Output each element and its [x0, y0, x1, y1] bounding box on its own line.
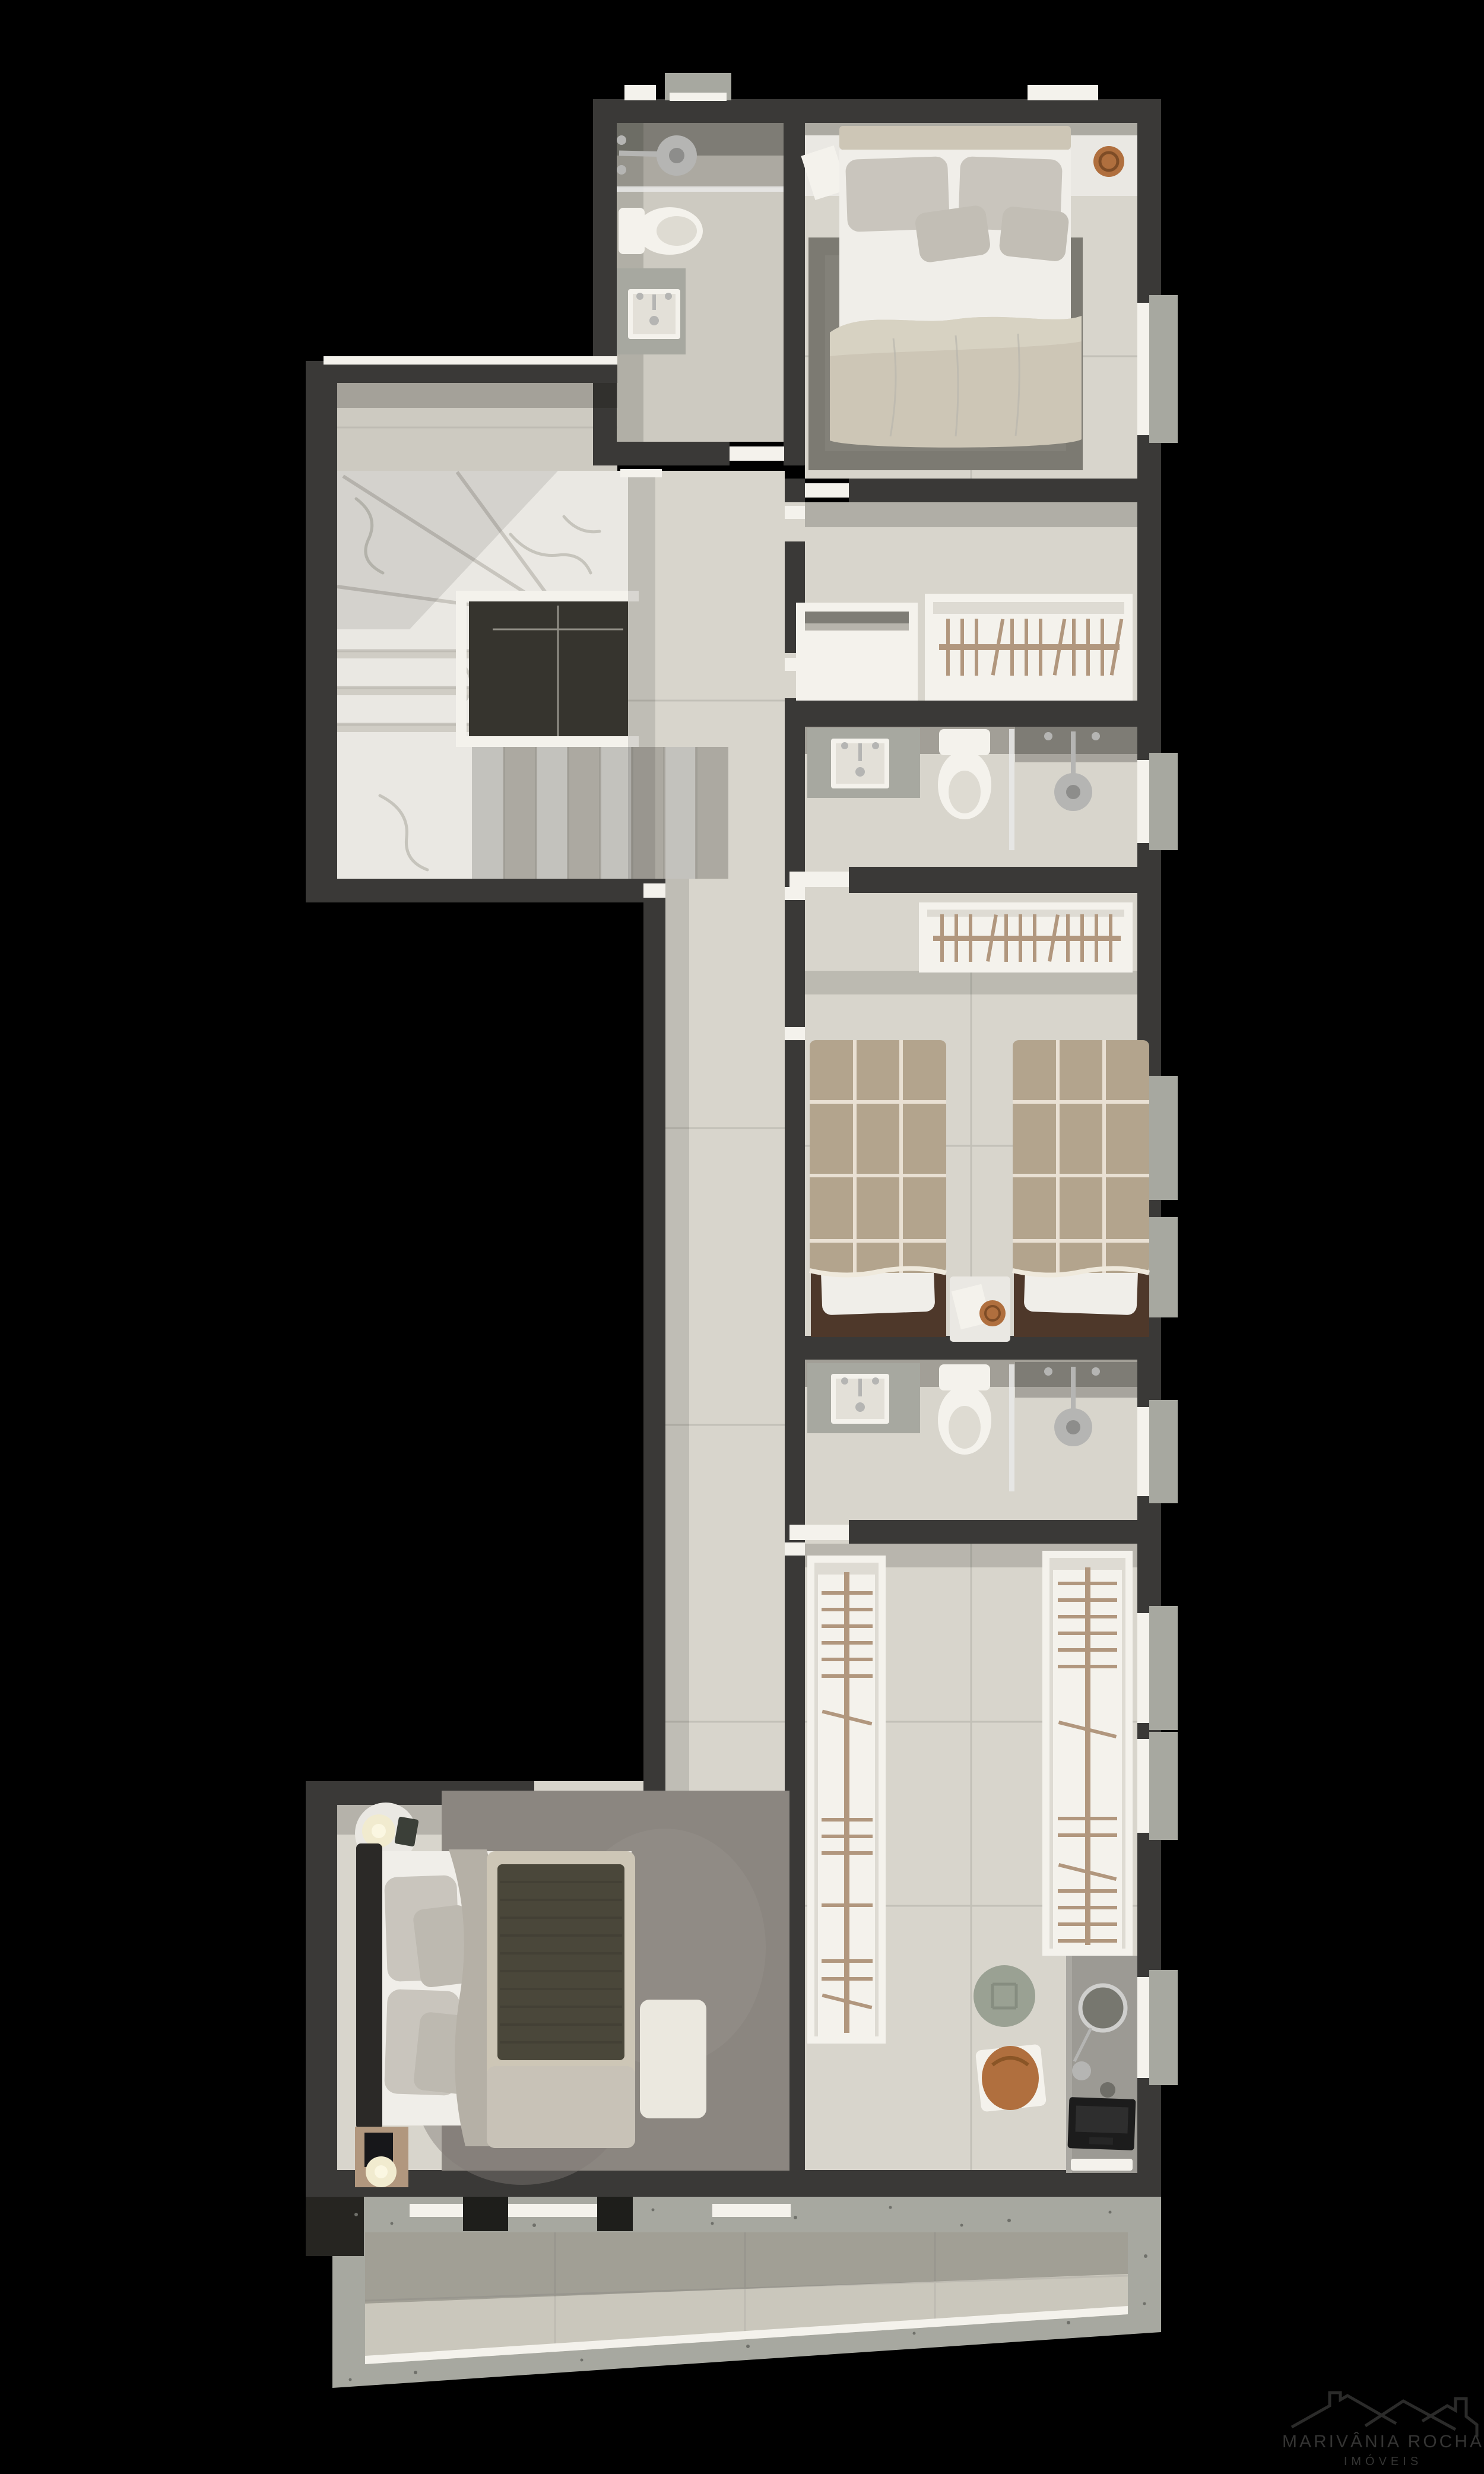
plaid-duvet — [810, 1040, 946, 1273]
sink-counter — [617, 268, 686, 354]
toilet — [938, 729, 991, 819]
round-mirror — [1080, 1985, 1125, 2030]
shower — [617, 123, 784, 192]
agency-tagline: IMÓVEIS — [1344, 2454, 1422, 2468]
lower-flight-steps — [472, 747, 728, 879]
small-dish — [1100, 2082, 1115, 2098]
toilet — [619, 207, 703, 255]
copper-decor — [979, 1300, 1006, 1326]
copper-decor — [1093, 146, 1124, 177]
clothes-rail-unit-2 — [919, 902, 1133, 973]
plaid-duvet — [1013, 1040, 1149, 1273]
sink-counter — [807, 728, 920, 798]
single-bed-left — [810, 1040, 946, 1337]
knit-throw — [497, 1864, 624, 2060]
king-bed — [356, 1843, 635, 2148]
toilet — [938, 1364, 991, 1455]
wardrobe-island-left — [807, 1556, 886, 2044]
notebook — [1071, 2159, 1133, 2171]
agency-name: MARIVÂNIA ROCHA — [1282, 2432, 1484, 2451]
foot-bench — [640, 2000, 706, 2118]
shower-glass — [1009, 729, 1014, 850]
headboard — [839, 126, 1071, 150]
dressing-nook — [796, 594, 1133, 701]
tray — [1072, 2061, 1091, 2080]
small-pillow — [998, 205, 1070, 262]
pouf — [974, 1965, 1035, 2027]
wood-nightstand — [355, 2127, 408, 2187]
stairwell-void — [469, 601, 628, 737]
small-pillow — [914, 204, 992, 264]
sink-counter — [807, 1363, 920, 1433]
open-shelf-unit — [796, 603, 918, 701]
shower-glass — [1009, 1364, 1014, 1491]
vanity-desk — [1066, 1956, 1137, 2173]
shared-nightstand — [950, 1276, 1010, 1342]
headboard — [356, 1843, 382, 2130]
floor-plan-render: MARIVÂNIA ROCHA IMÓVEIS — [0, 0, 1484, 2474]
wardrobe-island-right — [1042, 1551, 1133, 1956]
leather-bag — [975, 2044, 1047, 2112]
clothes-rail-unit — [925, 594, 1133, 701]
nightstand-right — [1068, 135, 1137, 196]
double-bed — [830, 126, 1082, 448]
laptop — [1067, 2097, 1136, 2150]
single-bed-right — [1013, 1040, 1149, 1337]
